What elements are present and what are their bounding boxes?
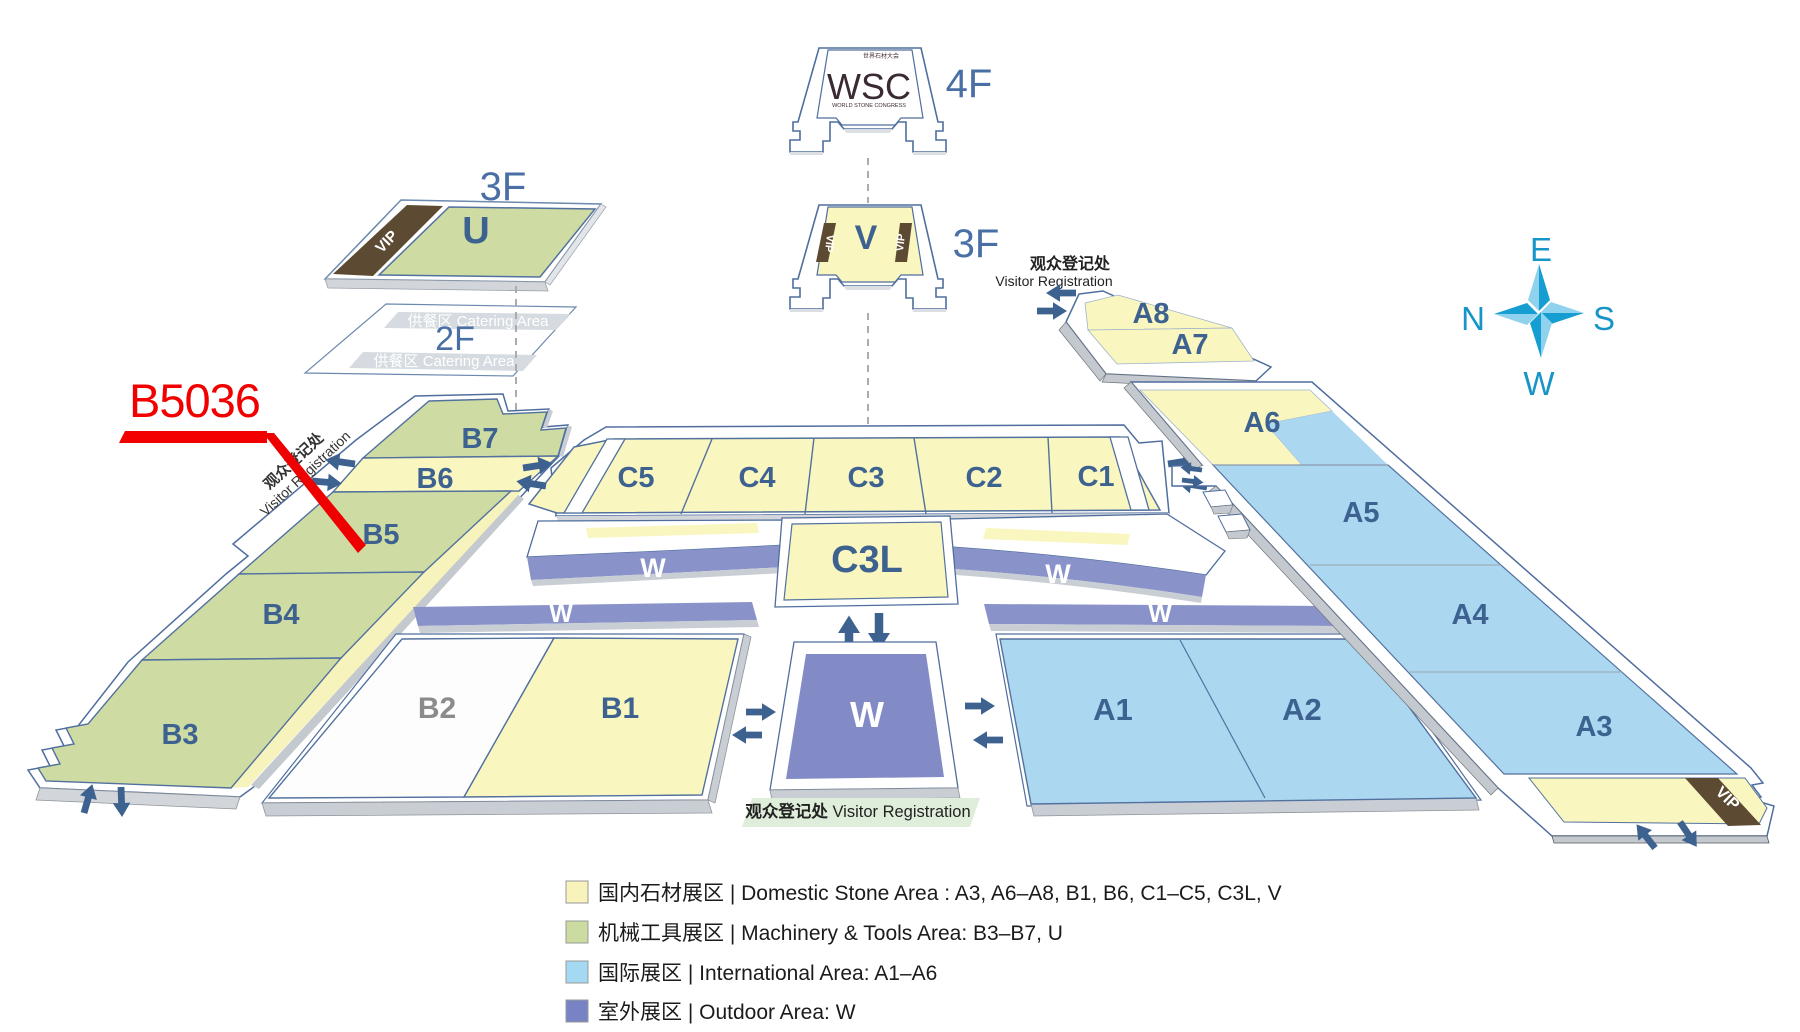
svg-text:室外展区 | Outdoor Area: W: 室外展区 | Outdoor Area: W xyxy=(598,1001,856,1024)
svg-text:B7: B7 xyxy=(461,423,498,455)
svg-text:W: W xyxy=(640,553,666,583)
svg-text:观众登记处 Visitor Registration: 观众登记处 Visitor Registration xyxy=(745,801,970,821)
svg-text:3F: 3F xyxy=(953,222,1000,266)
svg-text:WSC: WSC xyxy=(827,66,911,107)
svg-text:S: S xyxy=(1593,300,1615,337)
svg-text:C3L: C3L xyxy=(831,539,903,581)
svg-text:W: W xyxy=(549,600,573,628)
svg-text:N: N xyxy=(1461,300,1485,337)
svg-text:E: E xyxy=(1530,231,1552,268)
svg-text:B5: B5 xyxy=(362,519,399,551)
svg-text:国际展区 | International Area: A1: 国际展区 | International Area: A1–A6 xyxy=(598,962,937,985)
svg-text:U: U xyxy=(462,210,489,252)
svg-text:机械工具展区 | Machinery & Tools Are: 机械工具展区 | Machinery & Tools Area: B3–B7, … xyxy=(598,922,1063,945)
svg-text:C2: C2 xyxy=(965,462,1002,494)
svg-text:A5: A5 xyxy=(1342,497,1379,529)
svg-text:A6: A6 xyxy=(1243,407,1280,439)
svg-text:V: V xyxy=(855,219,878,257)
svg-text:B3: B3 xyxy=(161,719,198,751)
svg-text:观众登记处: 观众登记处 xyxy=(1030,254,1111,273)
svg-text:B4: B4 xyxy=(262,599,299,631)
svg-text:A3: A3 xyxy=(1575,711,1612,743)
svg-text:B6: B6 xyxy=(416,463,453,495)
svg-text:B5036: B5036 xyxy=(129,374,260,427)
svg-text:4F: 4F xyxy=(946,62,993,106)
svg-text:C3: C3 xyxy=(847,462,884,494)
svg-text:Visitor Registration: Visitor Registration xyxy=(995,273,1112,289)
svg-text:国内石材展区 | Domestic Stone Area :: 国内石材展区 | Domestic Stone Area : A3, A6–A8… xyxy=(598,882,1282,905)
svg-text:VIP: VIP xyxy=(822,234,836,253)
svg-text:A7: A7 xyxy=(1171,329,1208,361)
svg-text:B2: B2 xyxy=(418,692,456,725)
svg-text:C4: C4 xyxy=(738,462,775,494)
svg-text:A8: A8 xyxy=(1132,298,1169,330)
svg-text:世界石材大会: 世界石材大会 xyxy=(863,52,899,60)
svg-text:VIP: VIP xyxy=(894,233,908,252)
svg-text:W: W xyxy=(850,694,884,735)
svg-text:W: W xyxy=(1148,600,1172,628)
svg-text:W: W xyxy=(1045,559,1071,589)
svg-text:W: W xyxy=(1523,365,1555,402)
svg-text:A1: A1 xyxy=(1093,692,1133,727)
svg-text:C5: C5 xyxy=(617,462,654,494)
svg-text:A2: A2 xyxy=(1282,692,1322,727)
svg-text:供餐区 Catering Area: 供餐区 Catering Area xyxy=(408,313,550,330)
svg-text:B1: B1 xyxy=(601,692,639,725)
svg-text:A4: A4 xyxy=(1451,599,1488,631)
svg-text:C1: C1 xyxy=(1077,461,1114,493)
svg-text:3F: 3F xyxy=(480,165,527,209)
svg-text:2F: 2F xyxy=(435,320,475,358)
svg-text:WORLD STONE CONGRESS: WORLD STONE CONGRESS xyxy=(832,103,906,109)
